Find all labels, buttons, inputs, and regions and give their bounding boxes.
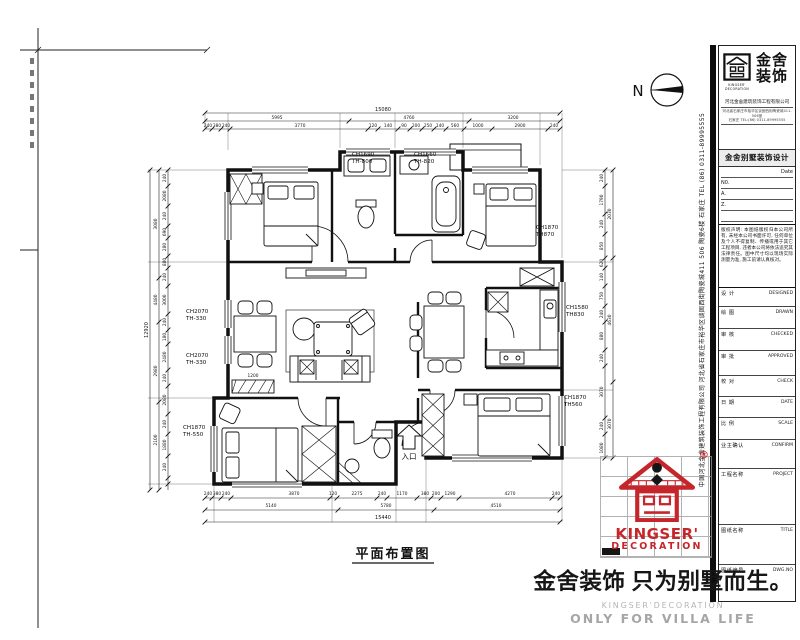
entry-arrow: 入口 xyxy=(397,425,421,461)
titleblock-field-drawn: 绘 图DRAWN xyxy=(719,307,795,329)
dimension-label: 15440 xyxy=(375,515,391,521)
field-label-en: DESIGNED xyxy=(769,291,793,296)
fridge xyxy=(488,292,508,312)
dimension-label: 2480 xyxy=(162,351,168,362)
field-label-en: APPROVED xyxy=(768,354,793,359)
kingser-stamp: ® A C KINGSER' DECORATION xyxy=(601,452,713,552)
logo-cn-text: 金舍 装饰 xyxy=(756,52,788,84)
ch-label: CH1870 xyxy=(536,225,559,231)
dimension-label: 240 xyxy=(162,463,168,471)
ch-label: TH560 xyxy=(563,402,583,408)
dimension-label: 240 xyxy=(162,273,168,281)
field-label-cn: 日 期 xyxy=(721,399,735,406)
dimension-label: 3870 xyxy=(289,491,300,497)
dimension-label: 3070 xyxy=(607,418,613,429)
company-name: 河北金舍建筑装饰工程有限公司 xyxy=(724,98,790,104)
wardrobe-hatch-bl xyxy=(302,426,336,482)
ch-label: CH1660 xyxy=(414,152,437,158)
dimension-label: 4630 xyxy=(607,314,613,325)
ch-label: CH1690 xyxy=(352,152,375,158)
dimension-label: 140 xyxy=(599,273,605,281)
dimension-label: 2900 xyxy=(515,123,526,129)
dimension-label: 2275 xyxy=(352,491,363,497)
field-label-cn: 审 核 xyxy=(721,331,735,338)
kingser-stamp-icon: A C xyxy=(619,456,695,522)
titleblock-field-project: 工程名称PROJECT xyxy=(719,469,795,525)
field-label-en: DATE xyxy=(781,400,793,405)
dimension-label: 620 xyxy=(599,259,605,267)
ch-label: TH-550 xyxy=(182,432,204,438)
bed-top-right xyxy=(486,184,536,246)
drawing-sheet: N xyxy=(0,0,800,640)
dimension-label: 240 xyxy=(204,123,212,129)
field-label-cn: 设 计 xyxy=(721,290,735,297)
dimension-label: 240 xyxy=(552,491,560,497)
titleblock-field-title: 图纸名称TITLE xyxy=(719,525,795,565)
dimension-label: 880 xyxy=(162,258,168,266)
project-type-band: 金舍别墅装饰设计 xyxy=(719,150,795,167)
dimension-label: 2980 xyxy=(153,365,159,376)
titleblock-fields: 设 计DESIGNED绘 图DRAWN审 核CHECKED审 批APPROVED… xyxy=(719,288,795,601)
field-label-cn: 业主确认 xyxy=(721,442,744,449)
dimension-label: 750 xyxy=(599,292,605,300)
duct-shaft xyxy=(520,268,554,286)
dimension-label: 240 xyxy=(162,212,168,220)
sofa xyxy=(290,356,370,382)
dimension-label: 240 xyxy=(550,123,558,129)
title-block: KINGSER' DECORATION 金舍 装饰 河北金舍建筑装饰工程有限公司… xyxy=(718,45,796,602)
svg-text:平面布置图: 平面布置图 xyxy=(355,546,430,562)
dimension-label: 240 xyxy=(599,354,605,362)
dimension-label: 3070 xyxy=(599,386,605,397)
titleblock-field-designed: 设 计DESIGNED xyxy=(719,288,795,307)
field-label-cn: 比 例 xyxy=(721,420,735,427)
dimension-label: 240 xyxy=(222,491,230,497)
dimension-label: 1880 xyxy=(162,439,168,450)
bath2-tub xyxy=(432,176,460,232)
dimension-label: 380 xyxy=(213,123,221,129)
stamp-decoration-text: DECORATION xyxy=(601,541,713,552)
dimension-label: 5995 xyxy=(272,115,283,121)
tv-cabinet xyxy=(286,268,366,278)
ch-label: CH1580 xyxy=(566,305,589,311)
frame-annotations xyxy=(30,58,34,148)
entry-label: 入口 xyxy=(402,452,417,461)
rev-z-label: Z. xyxy=(721,202,726,208)
titleblock-logo-section: KINGSER' DECORATION 金舍 装饰 河北金舍建筑装饰工程有限公司… xyxy=(719,46,795,150)
dimension-label: 140 xyxy=(384,123,392,129)
bed-bottom-right xyxy=(478,394,550,456)
north-label: N xyxy=(632,82,643,100)
dimension-label: 240 xyxy=(162,174,168,182)
field-label-en: CHECKED xyxy=(771,332,793,337)
svg-text:A: A xyxy=(655,465,660,472)
ch-label: CH2070 xyxy=(186,309,209,315)
dimension-label: 12920 xyxy=(144,322,150,338)
dimension-label: 3080 xyxy=(153,218,159,229)
field-label-en: DRAWN xyxy=(776,310,793,315)
dimension-label: 180 xyxy=(162,333,168,341)
dimension-label: 15080 xyxy=(375,107,391,113)
dimension-label: 240 xyxy=(599,174,605,182)
plan-title: 平面布置图 xyxy=(352,546,434,563)
dimension-label: 880 xyxy=(599,332,605,340)
stamp-kingser-text: KINGSER' xyxy=(601,527,713,541)
ch-label: TH-330 xyxy=(185,360,207,366)
logo-en-text: KINGSER' DECORATION xyxy=(725,83,749,91)
dimension-label: 140 xyxy=(436,123,444,129)
north-arrow: N xyxy=(632,74,683,106)
revision-lines: Date N0. A. Z. xyxy=(719,167,795,222)
field-label-cn: 校 对 xyxy=(721,378,735,385)
field-label-en: TITLE xyxy=(781,528,793,533)
ch-label: TH-800 xyxy=(351,159,373,165)
dimension-label: 1170 xyxy=(397,491,408,497)
dimension-label: 240 xyxy=(162,318,168,326)
titleblock-field-approved: 审 批APPROVED xyxy=(719,351,795,376)
registered-mark: ® xyxy=(699,450,709,461)
ch-label: TH870 xyxy=(535,232,555,238)
dimension-label: 380 xyxy=(421,491,429,497)
date-label: Date xyxy=(781,169,793,175)
dimension-label: 1200 xyxy=(248,373,259,379)
dimension-label: 4480 xyxy=(153,294,159,305)
ch-label: CH2070 xyxy=(186,353,209,359)
dimension-label: 200 xyxy=(412,123,420,129)
dimension-label: 240 xyxy=(222,123,230,129)
dimension-label: 240 xyxy=(599,310,605,318)
dimension-label: 4760 xyxy=(404,115,415,121)
wardrobe-hatch-br xyxy=(422,394,444,456)
company-address: 河北省石家庄市裕华区谈固西街陶瓷城411-506室 石家庄 TEL:(86) 0… xyxy=(721,107,793,125)
titleblock-field-scale: 比 例SCALE xyxy=(719,418,795,440)
svg-text:C: C xyxy=(655,478,659,484)
bed-bottom-left xyxy=(222,428,298,482)
dimension-label: 3200 xyxy=(508,115,519,121)
dimension-label: 2080 xyxy=(162,190,168,201)
dimension-label: 240 xyxy=(204,491,212,497)
ch-label: CH1870 xyxy=(183,425,206,431)
ch-label: CH1870 xyxy=(564,395,587,401)
bath3-toilet xyxy=(372,430,392,458)
nightstand xyxy=(464,394,477,405)
dimension-label: 240 xyxy=(378,491,386,497)
dimension-label: 120 xyxy=(369,123,377,129)
dimension-label: 240 xyxy=(599,422,605,430)
field-label-cn: 审 批 xyxy=(721,353,735,360)
dimension-label: 4510 xyxy=(491,503,502,509)
rev-a-label: A. xyxy=(721,191,726,197)
titleblock-field-checked: 审 核CHECKED xyxy=(719,329,795,351)
copyright-notice: 版权声明: 本图纸版权归本公司所有, 未经本公司书面许可, 任何单位及个人不得复… xyxy=(719,224,795,288)
field-label-en: PROJECT xyxy=(773,472,793,477)
titleblock-field-check: 校 对CHECK xyxy=(719,376,795,397)
dimension-label: 850 xyxy=(599,242,605,250)
slogan-block: 金舍装饰 只为别墅而生。 KINGSER'DECORATION ONLY FOR… xyxy=(528,564,798,626)
no-label: N0. xyxy=(721,180,730,186)
dimension-label: 3000 xyxy=(162,294,168,305)
dimension-label: 2080 xyxy=(162,394,168,405)
kingser-logo-icon xyxy=(723,53,751,81)
nightstand xyxy=(252,183,263,194)
slogan-en-brand: KINGSER'DECORATION xyxy=(528,601,798,610)
field-label-en: CONFIRM xyxy=(772,443,793,448)
dimension-label: 200 xyxy=(432,491,440,497)
ch-label: TH830 xyxy=(565,312,585,318)
sheet-frame xyxy=(20,28,210,628)
slogan-en-tagline: ONLY FOR VILLA LIFE xyxy=(528,611,798,626)
titleblock-field-date: 日 期DATE xyxy=(719,397,795,418)
field-label-en: SCALE xyxy=(778,421,793,426)
bath3-sink xyxy=(345,459,359,473)
dimension-label: 560 xyxy=(451,123,459,129)
bed-top-left xyxy=(264,182,318,246)
dimension-label: 1790 xyxy=(599,194,605,205)
dimension-label: 240 xyxy=(162,374,168,382)
dimension-label: 3770 xyxy=(295,123,306,129)
slogan-cn: 金舍装饰 只为别墅而生。 xyxy=(528,564,798,596)
dimension-label: 120 xyxy=(329,491,337,497)
dimension-label: 690 xyxy=(162,228,168,236)
coffee-table xyxy=(314,322,352,356)
dimension-label: 240 xyxy=(599,220,605,228)
cabinet-hatch xyxy=(232,380,274,393)
dimension-label: 280 xyxy=(162,243,168,251)
dimension-label: 4270 xyxy=(505,491,516,497)
dimension-label: 250 xyxy=(424,123,432,129)
ch-label: TH-820 xyxy=(413,159,435,165)
dimension-label: 1000 xyxy=(473,123,484,129)
field-label-cn: 图纸名称 xyxy=(721,527,744,534)
nightstand xyxy=(474,184,484,194)
dimension-label: 5140 xyxy=(266,503,277,509)
dimension-label: 5780 xyxy=(381,503,392,509)
dimension-label: 240 xyxy=(162,420,168,428)
dimension-label: 1290 xyxy=(445,491,456,497)
titleblock-field-confirm: 业主确认CONFIRM xyxy=(719,440,795,469)
dimension-label: 2100 xyxy=(153,434,159,445)
field-label-en: CHECK xyxy=(777,379,793,384)
ch-label: TH-330 xyxy=(185,316,207,322)
field-label-cn: 绘 图 xyxy=(721,309,735,316)
dimension-label: 90 xyxy=(401,123,407,129)
field-label-cn: 工程名称 xyxy=(721,471,744,478)
dimension-label: 380 xyxy=(213,491,221,497)
dimension-label: 2030 xyxy=(607,208,613,219)
